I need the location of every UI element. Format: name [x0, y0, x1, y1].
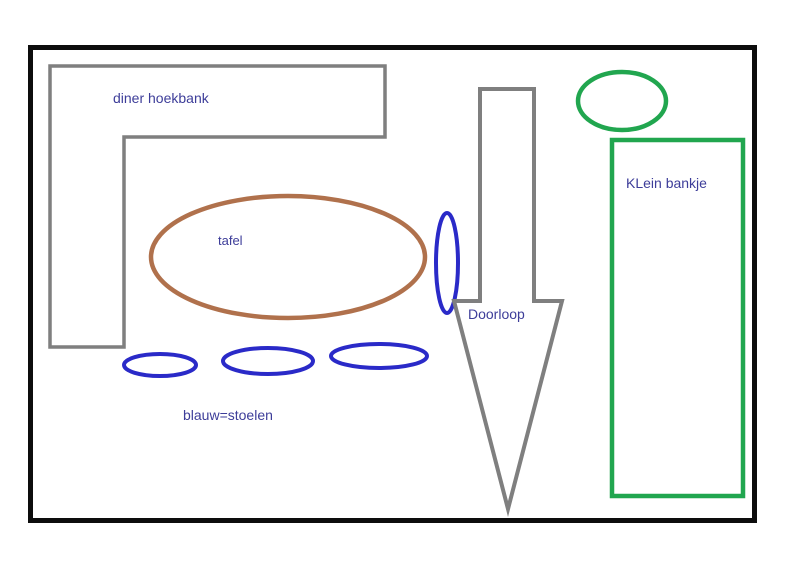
chair-legend-label: blauw=stoelen: [183, 407, 273, 423]
small-bench-label: KLein bankje: [626, 175, 707, 191]
room-frame: [31, 48, 755, 521]
table-label: tafel: [218, 233, 243, 248]
dining-table: [151, 196, 425, 318]
chair-side: [436, 213, 458, 313]
walkway-arrow: [454, 89, 562, 509]
chair-3: [331, 344, 427, 368]
drawing-canvas: diner hoekbank tafel Doorloop KLein bank…: [0, 0, 800, 575]
chair-2: [223, 348, 313, 374]
corner-bench-label: diner hoekbank: [113, 90, 210, 106]
walkway-label: Doorloop: [468, 306, 525, 322]
drawing-page: diner hoekbank tafel Doorloop KLein bank…: [0, 0, 800, 575]
small-bench: [612, 140, 743, 496]
chair-1: [124, 354, 196, 376]
small-bench-top: [578, 72, 666, 130]
